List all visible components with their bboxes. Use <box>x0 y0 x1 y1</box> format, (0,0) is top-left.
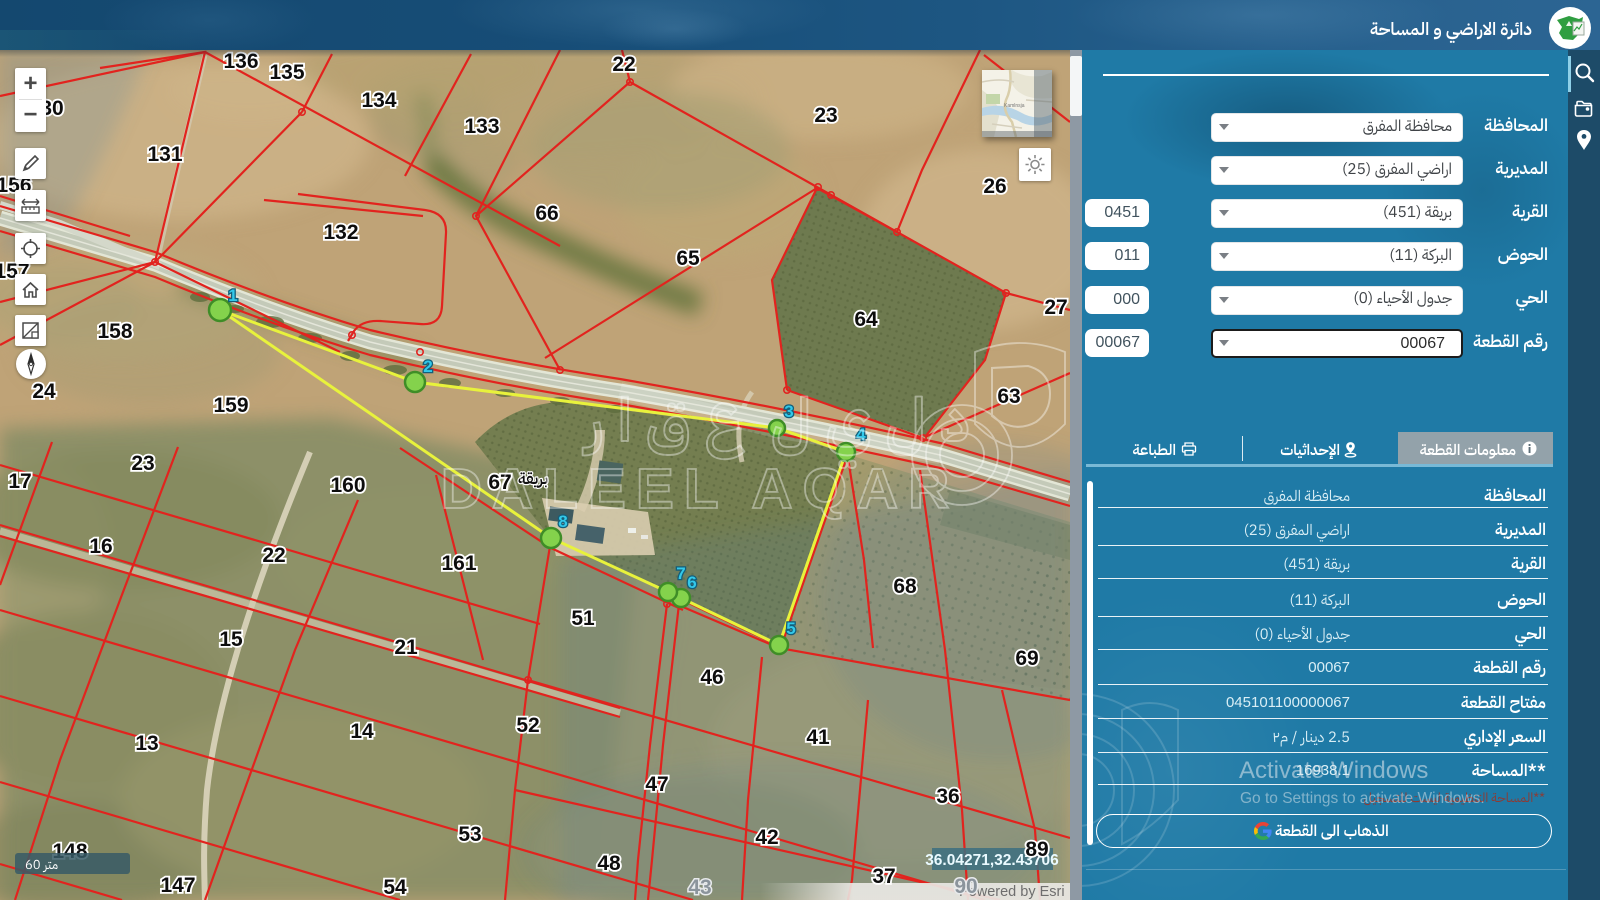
svg-text:134: 134 <box>361 89 396 112</box>
svg-text:133: 133 <box>464 115 499 138</box>
svg-text:131: 131 <box>147 143 182 166</box>
svg-text:46: 46 <box>700 666 723 689</box>
svg-text:66: 66 <box>535 202 558 225</box>
svg-text:54: 54 <box>383 876 407 899</box>
svg-text:4: 4 <box>856 425 866 444</box>
svg-text:3: 3 <box>784 402 793 421</box>
svg-text:23: 23 <box>131 452 154 475</box>
svg-text:23: 23 <box>814 104 837 127</box>
svg-text:13: 13 <box>135 732 158 755</box>
svg-text:65: 65 <box>676 247 700 270</box>
svg-text:6: 6 <box>687 573 696 592</box>
svg-text:36: 36 <box>936 785 959 808</box>
svg-text:53: 53 <box>458 823 481 846</box>
svg-text:159: 159 <box>213 394 248 417</box>
svg-text:15: 15 <box>219 628 243 651</box>
svg-text:24: 24 <box>32 380 56 403</box>
svg-text:22: 22 <box>262 544 285 567</box>
svg-text:89: 89 <box>1025 838 1048 861</box>
svg-text:48: 48 <box>597 852 621 875</box>
svg-text:160: 160 <box>330 474 365 497</box>
svg-text:51: 51 <box>571 607 595 630</box>
svg-text:64: 64 <box>854 308 878 331</box>
svg-text:27: 27 <box>1044 296 1067 319</box>
svg-text:132: 132 <box>323 221 358 244</box>
svg-text:69: 69 <box>1015 647 1038 670</box>
svg-text:135: 135 <box>269 61 304 84</box>
svg-text:17: 17 <box>8 470 31 493</box>
svg-text:26: 26 <box>983 175 1006 198</box>
svg-text:68: 68 <box>893 575 917 598</box>
svg-text:147: 147 <box>160 874 195 897</box>
svg-text:2: 2 <box>423 357 432 376</box>
svg-text:52: 52 <box>516 714 539 737</box>
svg-text:158: 158 <box>97 320 132 343</box>
svg-text:42: 42 <box>755 826 778 849</box>
svg-text:1: 1 <box>228 286 237 305</box>
svg-text:21: 21 <box>394 636 418 659</box>
svg-text:5: 5 <box>786 619 795 638</box>
svg-text:16: 16 <box>89 535 112 558</box>
svg-text:37: 37 <box>872 865 895 888</box>
svg-text:63: 63 <box>997 385 1020 408</box>
svg-text:14: 14 <box>350 720 374 743</box>
svg-text:43: 43 <box>688 876 711 899</box>
svg-text:Kamlnsja: Kamlnsja <box>1004 103 1025 109</box>
svg-text:161: 161 <box>441 552 476 575</box>
svg-text:DALEEL AQAR: DALEEL AQAR <box>441 457 960 521</box>
svg-text:7: 7 <box>676 564 685 583</box>
svg-text:90: 90 <box>954 875 977 898</box>
svg-text:47: 47 <box>645 773 668 796</box>
svg-text:41: 41 <box>806 726 830 749</box>
